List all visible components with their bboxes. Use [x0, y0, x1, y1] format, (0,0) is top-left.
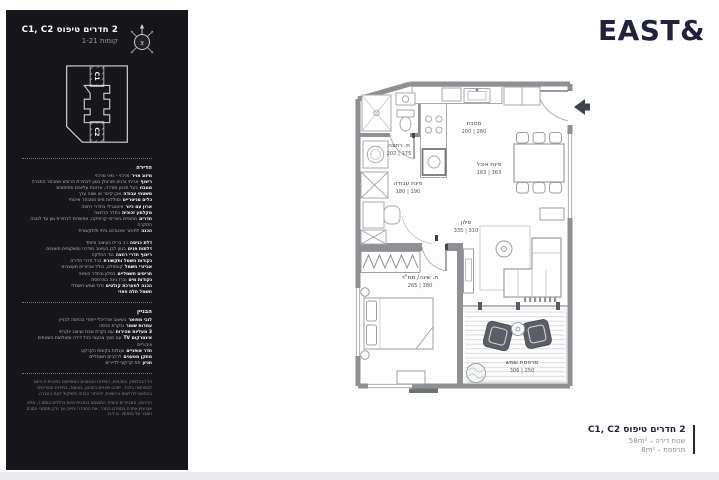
disclaimer-paragraph: הריהוט, האביזרים והציוד המוצגים בתכנית א…	[22, 401, 152, 418]
svg-text:צ: צ	[140, 39, 144, 47]
apartment-area: שטח דירה – 58m²	[588, 437, 686, 445]
compass-icon: צ	[124, 22, 160, 60]
building-spec-lines: לובי מפוארבעיצוב אדריכלי ייחודי בכניסה ל…	[22, 318, 152, 368]
svg-text:C2: C2	[93, 127, 100, 136]
sidebar-header: 2 חדרים טיפוס C1, C2 קומות 1-21	[22, 25, 118, 45]
entry-arrow-icon	[574, 99, 590, 115]
room-label-work: פינת עבודה	[394, 181, 423, 187]
spec-sidebar: 2 חדרים טיפוס C1, C2 קומות 1-21 צ	[6, 10, 188, 470]
separator	[22, 373, 152, 374]
bedroom-furniture	[361, 252, 438, 394]
svg-text:265 | 380: 265 | 380	[408, 283, 433, 289]
room-label-kitchen: מטבח	[467, 121, 482, 127]
room-label-salon: סלון	[461, 219, 471, 226]
separator	[22, 158, 152, 159]
svg-text:C1: C1	[93, 72, 100, 81]
apartment-spec-lines-b: דלת כניסהרב בריח בעיצוב מיוחדדלתות פניםב…	[22, 241, 152, 297]
building-section-heading: הבניין	[22, 309, 152, 315]
floorplan-sheet: 2 חדרים טיפוס C1, C2 קומות 1-21 צ	[0, 0, 719, 480]
svg-text:200 | 280: 200 | 280	[462, 129, 487, 135]
spec-text: הדירה מיזוג אוירמרכזי – מיני מרכזיריצוףא…	[22, 152, 152, 418]
living-room-furniture	[464, 208, 565, 297]
svg-text:306 | 250: 306 | 250	[510, 368, 535, 374]
spec-line: חשמל תלת פאזי	[22, 290, 152, 296]
apartment-spec-lines-a: מיזוג אוירמרכזי – מיני מרכזיריצוףאריחי ג…	[22, 174, 152, 236]
accent-bar	[693, 425, 696, 454]
page-bottom-strip	[0, 472, 719, 480]
room-label-balcony: מרפסת שמש	[506, 360, 538, 366]
room-label-bedroom: ת. שינה/ ממ"ד	[402, 275, 439, 281]
svg-text:202 | 175: 202 | 175	[387, 151, 412, 157]
spec-line: חניוןתת קרקעי לדיירים	[22, 361, 152, 367]
keyplan-core	[84, 85, 109, 122]
svg-text:335 | 310: 335 | 310	[454, 228, 479, 234]
separator	[22, 302, 152, 303]
room-label-bathroom: ת. רחצה	[388, 143, 410, 149]
apartment-section-heading: הדירה	[22, 165, 152, 171]
spec-line: חדריםמחופים באריחי קרמיקה, אפשרות לבחירת…	[22, 217, 152, 229]
type-summary-block: 2 חדרים טיפוס C1, C2 שטח דירה – 58m² מרפ…	[588, 425, 695, 454]
disclaimer-paragraph: כל ההדמיות, התכניות, המידות והנתונים המו…	[22, 380, 152, 397]
svg-text:163 | 363: 163 | 363	[477, 170, 502, 176]
unit-type-title: 2 חדרים טיפוס C1, C2	[22, 25, 118, 35]
balcony-sliding-door	[463, 297, 568, 310]
dining-furniture	[514, 133, 564, 194]
svg-text:180 | 190: 180 | 190	[396, 189, 421, 195]
type-title: 2 חדרים טיפוס C1, C2	[588, 425, 686, 435]
spec-line: אינטרקום TVעם מסך צבעוני בכל דירה ומצלמו…	[22, 336, 152, 348]
east-logo: EAST&	[598, 14, 705, 47]
floors-range: קומות 1-21	[22, 37, 118, 45]
building-keyplan: C1 C2	[53, 62, 141, 150]
balcony-area: מרפסת – 8m²	[588, 446, 686, 454]
floor-plan: מטבח 200 | 280 ת. רחצה 202 | 175 פינת או…	[352, 78, 592, 393]
room-label-dining: פינת אוכל	[477, 161, 502, 168]
plant	[467, 364, 486, 383]
